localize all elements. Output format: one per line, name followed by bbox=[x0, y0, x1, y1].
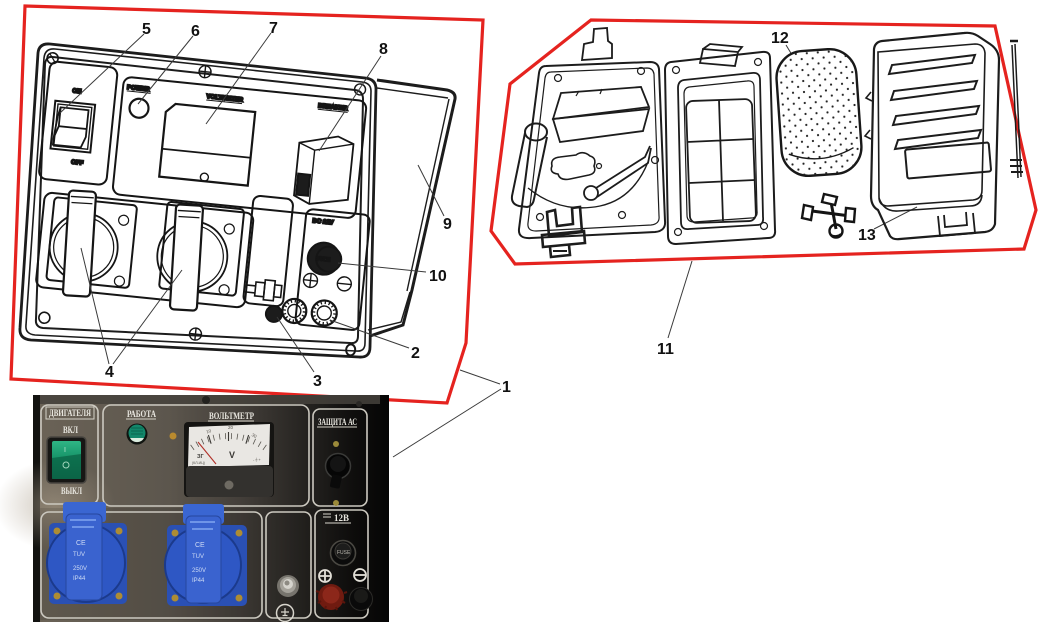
svg-text:CE: CE bbox=[76, 540, 86, 547]
svg-text:ВКЛ: ВКЛ bbox=[63, 425, 78, 435]
svg-text:I: I bbox=[64, 447, 66, 454]
svg-text:9: 9 bbox=[443, 216, 452, 233]
svg-text:ВЫКЛ: ВЫКЛ bbox=[61, 486, 82, 496]
svg-text:FUSE: FUSE bbox=[337, 550, 351, 556]
svg-text:V: V bbox=[229, 450, 235, 460]
svg-text:11: 11 bbox=[657, 341, 674, 358]
svg-text:CE: CE bbox=[195, 542, 205, 549]
svg-text:OFF: OFF bbox=[71, 160, 84, 167]
svg-text:РАБОТА: РАБОТА bbox=[127, 409, 156, 419]
svg-text:ВОЛЬТМЕТР: ВОЛЬТМЕТР bbox=[209, 411, 254, 421]
svg-text:TUV: TUV bbox=[73, 552, 85, 558]
svg-text:3: 3 bbox=[313, 373, 322, 390]
svg-text:-⏚+: -⏚+ bbox=[253, 456, 261, 462]
svg-text:10: 10 bbox=[429, 268, 447, 285]
svg-text:(КЛ-ИЦ): (КЛ-ИЦ) bbox=[192, 461, 205, 465]
svg-text:ЗГ: ЗГ bbox=[197, 454, 204, 460]
svg-text:IP44: IP44 bbox=[73, 576, 86, 582]
svg-text:8: 8 bbox=[379, 41, 388, 58]
svg-text:12В: 12В bbox=[334, 513, 349, 523]
svg-text:13: 13 bbox=[858, 227, 876, 244]
svg-text:TUV: TUV bbox=[192, 554, 204, 560]
svg-text:250V: 250V bbox=[192, 568, 206, 574]
svg-text:6: 6 bbox=[191, 23, 200, 40]
svg-text:ДВИГАТЕЛЯ: ДВИГАТЕЛЯ bbox=[49, 408, 91, 418]
svg-text:IP44: IP44 bbox=[192, 578, 205, 584]
svg-text:2: 2 bbox=[411, 345, 420, 362]
svg-text:4: 4 bbox=[105, 364, 114, 381]
svg-text:ЗАЩИТА АС: ЗАЩИТА АС bbox=[318, 417, 357, 427]
svg-text:5: 5 bbox=[142, 21, 151, 38]
svg-text:1: 1 bbox=[502, 379, 511, 396]
svg-text:20: 20 bbox=[228, 425, 234, 430]
svg-text:250V: 250V bbox=[73, 566, 87, 572]
svg-text:7: 7 bbox=[269, 20, 278, 37]
svg-text:12: 12 bbox=[771, 30, 789, 47]
